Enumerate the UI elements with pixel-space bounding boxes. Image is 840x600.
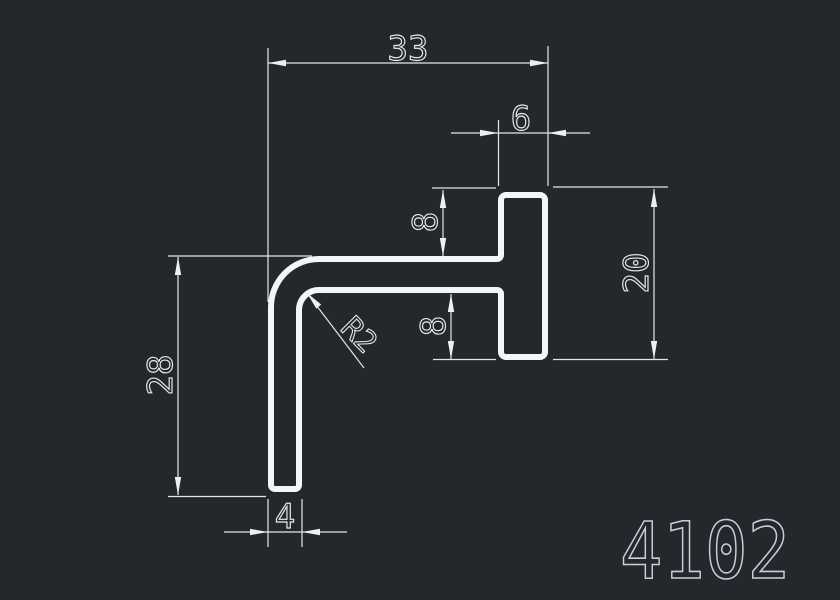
arrow-down-icon (175, 477, 181, 495)
dimension-4: 4 (224, 497, 347, 547)
dimension-value: 33 (388, 29, 429, 69)
dimension-value: 20 (617, 253, 657, 294)
arrow-up-icon (175, 257, 181, 275)
radius-callout-r2: R2 (307, 293, 384, 368)
dimension-8-bottom: 8 (414, 294, 496, 360)
arrow-right-icon (250, 529, 268, 535)
arrow-left-icon (268, 60, 286, 66)
dimension-value: 4 (275, 497, 295, 537)
arrow-right-icon (480, 130, 498, 136)
dimension-value: 6 (511, 99, 531, 139)
arrow-up-icon (440, 190, 446, 208)
dimension-value: 8 (406, 212, 446, 232)
dimension-value: 28 (141, 355, 181, 396)
dimension-value: 8 (414, 316, 454, 336)
arrow-left-icon (548, 130, 566, 136)
cad-drawing-canvas: 33 6 8 8 20 28 (0, 0, 840, 600)
cad-drawing: 33 6 8 8 20 28 (0, 0, 840, 600)
part-number: 4102 (620, 507, 790, 597)
arrow-down-icon (448, 341, 454, 359)
arrow-down-icon (651, 341, 657, 359)
dimension-6: 6 (451, 99, 590, 186)
arrow-right-icon (530, 60, 548, 66)
arrow-up-icon (448, 294, 454, 312)
dimension-28: 28 (141, 256, 312, 497)
arrow-up-icon (651, 189, 657, 207)
dimension-8-top: 8 (406, 188, 496, 256)
arrow-up-left-icon (307, 293, 321, 309)
radius-value: R2 (334, 310, 384, 360)
profile-outline (271, 195, 545, 489)
arrow-left-icon (302, 529, 320, 535)
arrow-down-icon (440, 238, 446, 256)
dimension-20: 20 (553, 187, 668, 360)
